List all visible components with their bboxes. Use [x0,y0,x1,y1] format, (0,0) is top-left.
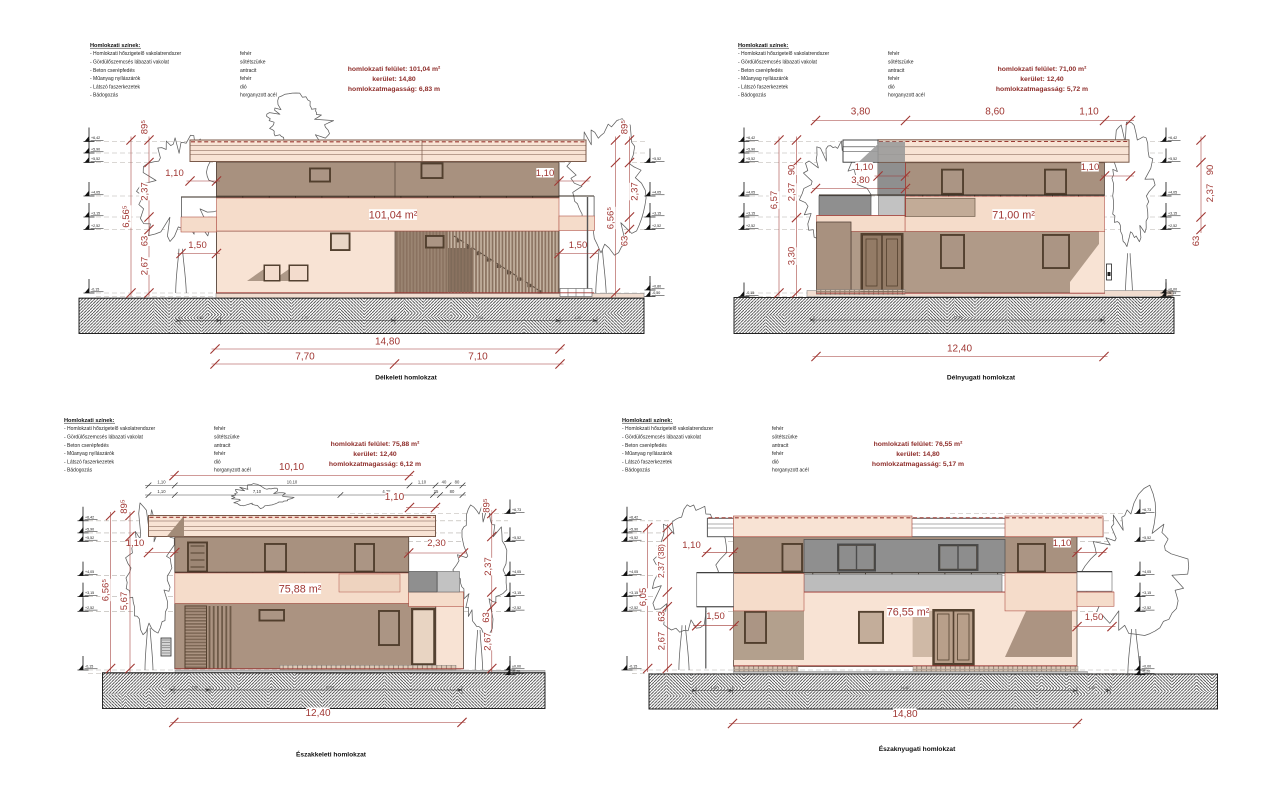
svg-text:homlokzati felület: 75,88 m²: homlokzati felület: 75,88 m² [331,441,420,448]
svg-text:dió: dió [888,84,895,90]
svg-text:- Beton cserépfedés: - Beton cserépfedés [622,443,667,449]
svg-text:fehér: fehér [240,51,252,57]
svg-text:89⁵: 89⁵ [482,498,493,513]
svg-text:80: 80 [455,479,460,484]
svg-text:25: 25 [434,489,439,494]
svg-text:homlokzatmagasság: 5,17 m: homlokzatmagasság: 5,17 m [872,461,964,468]
svg-text:7,70: 7,70 [302,316,309,320]
svg-text:7,10: 7,10 [477,316,484,320]
svg-text:Délnyugati homlokzat: Délnyugati homlokzat [947,375,1016,382]
svg-text:fehér: fehér [772,426,784,432]
svg-text:- Homlokzati hőszigetelő vakol: - Homlokzati hőszigetelő vakolatrendszer [90,51,181,57]
svg-text:+4,05: +4,05 [512,570,521,574]
svg-text:14,80: 14,80 [901,686,910,690]
svg-text:1,10: 1,10 [165,168,184,179]
svg-text:40: 40 [442,479,447,484]
svg-text:2,37: 2,37 [630,182,641,201]
svg-text:- Látszó faszerkezetek: - Látszó faszerkezetek [622,459,673,465]
svg-text:+2,52: +2,52 [652,224,661,228]
svg-text:1,20: 1,20 [711,686,718,690]
svg-text:63: 63 [1191,236,1202,247]
svg-text:-0,15: -0,15 [91,288,99,292]
svg-text:homlokzatmagasság: 6,12 m: homlokzatmagasság: 6,12 m [329,461,421,468]
svg-text:2,67: 2,67 [656,632,667,651]
svg-text:2,37: 2,37 [483,557,494,576]
svg-text:Délkeleti homlokzat: Délkeleti homlokzat [375,375,437,382]
svg-text:1,10: 1,10 [536,168,555,179]
svg-text:+6,42: +6,42 [746,136,755,140]
svg-text:-0,15: -0,15 [746,291,754,295]
svg-text:kerület: 14,80: kerület: 14,80 [896,451,940,458]
svg-text:sötétszürke: sötétszürke [240,60,266,66]
svg-text:sötétszürke: sötétszürke [888,60,914,66]
svg-text:- Gördülőszemcsés lábazati vak: - Gördülőszemcsés lábazati vakolat [90,60,170,66]
svg-text:- Homlokzati hőszigetelő vakol: - Homlokzati hőszigetelő vakolatrendszer [64,426,155,432]
svg-text:antracit: antracit [240,68,257,74]
svg-text:+0,80: +0,80 [652,285,661,289]
svg-text:dió: dió [772,459,779,465]
svg-text:-0,20: -0,20 [512,669,520,673]
svg-text:14,80: 14,80 [375,337,400,348]
svg-text:1,50: 1,50 [706,611,725,622]
svg-text:+4,05: +4,05 [91,191,100,195]
svg-text:3,80: 3,80 [851,107,871,118]
svg-text:kerület: 14,80: kerület: 14,80 [372,76,416,83]
svg-text:89⁵: 89⁵ [140,120,151,135]
svg-text:6,56⁵: 6,56⁵ [101,579,112,601]
svg-text:+5,52: +5,52 [746,157,755,161]
svg-text:1,10: 1,10 [385,492,405,503]
svg-text:2,37: 2,37 [140,182,151,201]
svg-text:+3,15: +3,15 [91,212,100,216]
svg-text:71,00 m²: 71,00 m² [992,210,1035,222]
svg-text:101,04 m²: 101,04 m² [369,210,418,222]
svg-text:75,88 m²: 75,88 m² [279,584,322,596]
svg-text:2,37: 2,37 [787,183,798,202]
svg-text:-0,15: -0,15 [1168,291,1176,295]
svg-text:- Műanyag nyílászárók: - Műanyag nyílászárók [738,76,789,82]
svg-text:Északnyugati homlokzat: Északnyugati homlokzat [879,744,956,753]
svg-text:1,10: 1,10 [1053,538,1072,549]
svg-text:homlokzatmagasság: 5,72 m: homlokzatmagasság: 5,72 m [996,86,1088,93]
svg-text:- Gördülőszemcsés lábazati vak: - Gördülőszemcsés lábazati vakolat [738,60,818,66]
svg-text:+3,15: +3,15 [85,591,94,595]
svg-text:+4,05: +4,05 [1142,570,1151,574]
svg-text:-0,15: -0,15 [85,665,93,669]
svg-text:sötétszürke: sötétszürke [772,435,798,441]
svg-text:2,37: 2,37 [1205,184,1216,203]
svg-text:63: 63 [620,236,631,247]
svg-text:5,67: 5,67 [119,592,130,611]
svg-text:2,50: 2,50 [197,316,204,320]
svg-text:1,20: 1,20 [1089,686,1096,690]
svg-text:+2,52: +2,52 [91,224,100,228]
svg-text:+3,15: +3,15 [1168,212,1177,216]
svg-text:+5,90: +5,90 [91,148,100,152]
svg-text:kerület: 12,40: kerület: 12,40 [353,451,397,458]
svg-text:10,10: 10,10 [279,462,304,473]
svg-text:3,30: 3,30 [787,247,798,266]
svg-text:- Műanyag nyílászárók: - Műanyag nyílászárók [90,76,141,82]
svg-text:- Beton cserépfedés: - Beton cserépfedés [90,68,135,74]
svg-text:+6,42: +6,42 [1168,136,1177,140]
svg-text:antracit: antracit [214,443,231,449]
svg-text:+6,42: +6,42 [629,515,638,519]
svg-text:+5,90: +5,90 [85,528,94,532]
svg-text:90: 90 [787,165,798,176]
svg-text:6,56⁵: 6,56⁵ [606,207,617,229]
svg-text:+4,05: +4,05 [652,191,661,195]
svg-text:- Látszó faszerkezetek: - Látszó faszerkezetek [90,84,141,90]
svg-text:7,10: 7,10 [253,489,262,494]
svg-text:- Műanyag nyílászárók: - Műanyag nyílászárók [622,451,673,457]
svg-text:80: 80 [450,489,455,494]
svg-text:- Beton cserépfedés: - Beton cserépfedés [738,68,783,74]
svg-text:+5,90: +5,90 [746,148,755,152]
svg-text:- Látszó faszerkezetek: - Látszó faszerkezetek [738,84,789,90]
svg-text:+6,42: +6,42 [85,515,94,519]
svg-text:fehér: fehér [888,76,900,82]
svg-text:- Homlokzati hőszigetelő vakol: - Homlokzati hőszigetelő vakolatrendszer [622,426,713,432]
svg-text:6,57: 6,57 [769,191,780,210]
svg-text:antracit: antracit [772,443,789,449]
svg-text:14,80: 14,80 [892,709,917,720]
svg-text:12,40: 12,40 [954,316,963,320]
svg-text:8,60: 8,60 [985,107,1005,118]
svg-text:1,50: 1,50 [1085,612,1104,623]
svg-text:- Bádogozás: - Bádogozás [622,468,651,474]
svg-text:+5,52: +5,52 [1168,157,1177,161]
svg-text:+4,05: +4,05 [746,191,755,195]
svg-text:2,67: 2,67 [140,257,151,276]
svg-text:+3,15: +3,15 [1142,591,1151,595]
svg-text:1,50: 1,50 [569,240,588,251]
svg-text:+5,52: +5,52 [1142,536,1151,540]
svg-text:- Homlokzati hőszigetelő vakol: - Homlokzati hőszigetelő vakolatrendszer [738,51,829,57]
svg-text:63: 63 [481,612,492,623]
svg-text:horganyzott acél: horganyzott acél [888,93,925,99]
svg-text:- Beton cserépfedés: - Beton cserépfedés [64,443,109,449]
svg-text:-0,50: -0,50 [652,291,660,295]
svg-text:7,70: 7,70 [295,352,315,363]
svg-text:- Bádogozás: - Bádogozás [738,93,767,99]
svg-text:dió: dió [214,459,221,465]
svg-text:1,50: 1,50 [192,686,199,690]
svg-text:±0,00: ±0,00 [512,665,521,669]
svg-text:2,67: 2,67 [483,632,494,651]
svg-text:76,55 m²: 76,55 m² [887,607,930,619]
svg-text:-0,15: -0,15 [629,665,637,669]
svg-text:+5,52: +5,52 [512,536,521,540]
svg-text:Északkeleti homlokzat: Északkeleti homlokzat [296,750,367,759]
svg-text:+5,52: +5,52 [85,536,94,540]
svg-text:+2,52: +2,52 [1168,224,1177,228]
svg-text:- Látszó faszerkezetek: - Látszó faszerkezetek [64,459,115,465]
svg-text:12,40: 12,40 [305,708,330,719]
svg-text:fehér: fehér [772,451,784,457]
svg-text:1,50: 1,50 [575,316,582,320]
svg-text:-0,20: -0,20 [1142,669,1150,673]
svg-text:+4,05: +4,05 [1168,191,1177,195]
svg-text:2,37 (38): 2,37 (38) [656,544,666,578]
svg-text:89⁵: 89⁵ [620,120,631,135]
svg-text:+4,05: +4,05 [629,570,638,574]
svg-text:6,05: 6,05 [638,588,649,607]
svg-text:+2,52: +2,52 [85,606,94,610]
svg-text:horganyzott acél: horganyzott acél [214,468,251,474]
svg-text:2,30: 2,30 [427,538,446,549]
svg-text:90: 90 [1205,165,1216,176]
svg-text:+6,73: +6,73 [1142,508,1151,512]
svg-text:+3,15: +3,15 [746,212,755,216]
svg-text:- Bádogozás: - Bádogozás [64,468,93,474]
svg-text:homlokzati felület: 101,04 m²: homlokzati felület: 101,04 m² [348,66,441,73]
svg-text:1,10: 1,10 [855,162,874,173]
svg-text:10,10: 10,10 [287,479,298,484]
svg-text:+6,73: +6,73 [512,508,521,512]
svg-text:+2,52: +2,52 [512,606,521,610]
svg-text:+3,15: +3,15 [629,591,638,595]
svg-text:3,80: 3,80 [851,175,870,186]
svg-text:1,10: 1,10 [157,489,166,494]
svg-text:sötétszürke: sötétszürke [214,435,240,441]
svg-text:homlokzatmagasság: 6,83 m: homlokzatmagasság: 6,83 m [348,86,440,93]
svg-text:1,10: 1,10 [157,479,166,484]
svg-text:10,90: 10,90 [326,686,335,690]
svg-text:homlokzati felület: 76,55 m²: homlokzati felület: 76,55 m² [874,441,963,448]
svg-text:+2,52: +2,52 [629,606,638,610]
svg-text:1,10: 1,10 [1079,107,1099,118]
svg-text:- Műanyag nyílászárók: - Műanyag nyílászárók [64,451,115,457]
svg-text:+0,00: +0,00 [1142,665,1151,669]
svg-text:+4,05: +4,05 [85,570,94,574]
svg-text:+2,52: +2,52 [1142,606,1151,610]
svg-text:63: 63 [656,611,667,622]
svg-text:1,10: 1,10 [1081,162,1100,173]
svg-text:+3,15: +3,15 [512,591,521,595]
svg-text:+5,90: +5,90 [629,528,638,532]
svg-text:+2,52: +2,52 [746,224,755,228]
svg-text:fehér: fehér [240,76,252,82]
svg-text:fehér: fehér [214,451,226,457]
svg-text:homlokzati felület: 71,00 m²: homlokzati felület: 71,00 m² [998,66,1087,73]
svg-text:+6,42: +6,42 [91,136,100,140]
svg-text:12,40: 12,40 [947,344,972,355]
svg-text:- Bádogozás: - Bádogozás [90,93,119,99]
svg-text:antracit: antracit [888,68,905,74]
svg-text:fehér: fehér [214,426,226,432]
svg-text:fehér: fehér [888,51,900,57]
svg-text:kerület: 12,40: kerület: 12,40 [1020,76,1064,83]
svg-text:dió: dió [240,84,247,90]
svg-text:63: 63 [140,236,151,247]
svg-text:7,10: 7,10 [468,352,488,363]
svg-text:horganyzott acél: horganyzott acél [772,468,809,474]
svg-text:- Gördülőszemcsés lábazati vak: - Gördülőszemcsés lábazati vakolat [64,435,144,441]
svg-text:1,50: 1,50 [188,240,207,251]
svg-text:+3,15: +3,15 [652,212,661,216]
svg-text:+5,52: +5,52 [91,157,100,161]
svg-text:89⁵: 89⁵ [119,499,130,514]
svg-text:1,10: 1,10 [682,540,701,551]
svg-text:1,10: 1,10 [126,538,145,549]
svg-text:+5,52: +5,52 [652,157,661,161]
svg-text:6,56⁵: 6,56⁵ [121,205,132,227]
svg-text:1,10: 1,10 [418,479,427,484]
svg-text:- Gördülőszemcsés lábazati vak: - Gördülőszemcsés lábazati vakolat [622,435,702,441]
svg-text:+5,52: +5,52 [629,536,638,540]
svg-text:horganyzott acél: horganyzott acél [240,93,277,99]
